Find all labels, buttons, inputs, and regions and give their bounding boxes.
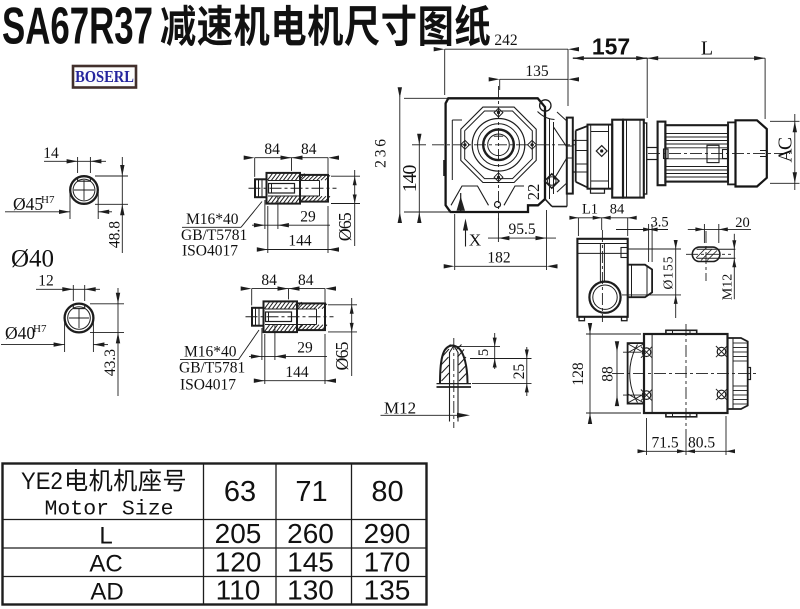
svg-text:130: 130 [287,575,334,606]
svg-text:ISO4017: ISO4017 [182,243,238,260]
svg-text:22: 22 [524,184,543,201]
svg-text:242: 242 [494,32,517,49]
svg-text:128: 128 [570,362,587,386]
svg-text:AC: AC [776,138,797,163]
svg-text:GB/T5781: GB/T5781 [179,359,245,376]
svg-text:AD: AD [90,579,123,606]
svg-text:BOSERL: BOSERL [75,68,134,86]
svg-text:X: X [469,231,481,250]
svg-text:M12: M12 [384,398,416,417]
svg-text:H7: H7 [41,194,55,206]
svg-text:88: 88 [600,366,617,382]
svg-text:84: 84 [301,141,317,158]
svg-text:L: L [701,38,713,60]
svg-text:260: 260 [287,518,334,549]
svg-text:144: 144 [288,233,312,250]
svg-text:84: 84 [610,201,625,217]
svg-text:Ø45: Ø45 [13,194,43,214]
svg-text:120: 120 [215,547,262,578]
svg-text:84: 84 [298,272,314,289]
svg-text:GB/T5781: GB/T5781 [181,227,247,244]
svg-text:Ø40: Ø40 [5,323,35,343]
svg-text:25: 25 [511,364,528,380]
svg-text:5: 5 [476,349,492,357]
svg-text:236: 236 [373,136,390,168]
svg-text:144: 144 [285,364,309,381]
svg-text:20: 20 [735,215,750,231]
svg-text:95.5: 95.5 [508,221,535,238]
svg-text:205: 205 [215,518,262,549]
svg-text:Ø65: Ø65 [335,212,355,241]
svg-text:M12: M12 [721,274,736,300]
svg-text:135: 135 [525,63,549,80]
svg-text:AC: AC [89,551,122,578]
svg-text:182: 182 [487,250,510,267]
svg-text:29: 29 [300,209,316,226]
svg-text:48.8: 48.8 [107,221,124,248]
svg-text:157: 157 [592,34,630,60]
svg-text:145: 145 [287,547,334,578]
svg-text:Motor Size: Motor Size [44,498,173,522]
svg-text:29: 29 [297,340,313,357]
svg-text:Ø40: Ø40 [11,246,54,273]
svg-text:Ø155: Ø155 [661,256,676,290]
svg-text:12: 12 [38,273,54,290]
svg-text:135: 135 [364,575,411,606]
svg-text:14: 14 [43,145,59,162]
svg-text:63: 63 [224,476,256,508]
svg-text:H7: H7 [33,323,47,335]
svg-text:80: 80 [371,476,403,508]
svg-text:L: L [99,523,112,550]
svg-text:290: 290 [364,518,411,549]
svg-text:Ø65: Ø65 [332,342,352,371]
svg-text:140: 140 [399,165,421,193]
svg-text:43.3: 43.3 [102,349,119,376]
svg-text:YE2: YE2 [21,467,63,494]
svg-text:L1: L1 [582,201,598,217]
svg-text:80.5: 80.5 [688,435,715,452]
svg-text:ISO4017: ISO4017 [180,377,236,394]
svg-text:84: 84 [261,272,277,289]
svg-text:SA67R37: SA67R37 [2,0,153,55]
svg-text:3.5: 3.5 [650,215,668,231]
svg-text:71: 71 [295,476,327,508]
svg-text:170: 170 [364,547,411,578]
svg-text:110: 110 [216,575,261,606]
svg-text:M16*40: M16*40 [186,211,239,228]
svg-text:M16*40: M16*40 [184,344,237,361]
svg-text:71.5: 71.5 [651,435,678,452]
svg-text:84: 84 [264,141,280,158]
